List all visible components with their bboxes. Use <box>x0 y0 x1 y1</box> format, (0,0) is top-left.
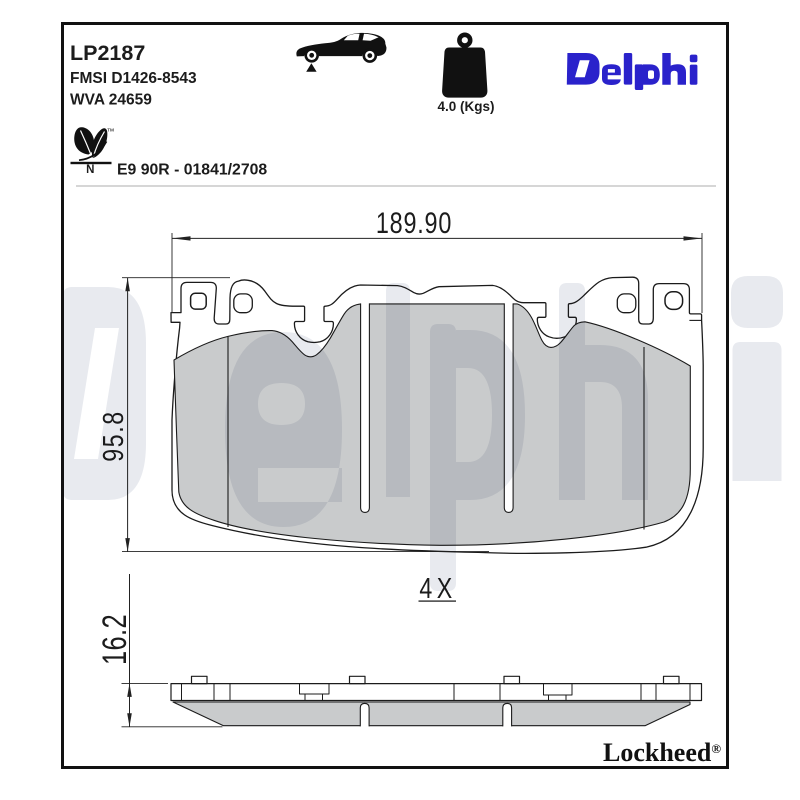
svg-text:WVA 24659: WVA 24659 <box>70 92 152 109</box>
svg-text:E9 90R - 01841/2708: E9 90R - 01841/2708 <box>117 162 267 179</box>
svg-text:Lockheed®: Lockheed® <box>603 738 721 767</box>
svg-text:4.0 (Kgs): 4.0 (Kgs) <box>437 99 494 114</box>
svg-text:16.2: 16.2 <box>97 614 134 665</box>
svg-text:™: ™ <box>107 127 115 136</box>
svg-text:189.90: 189.90 <box>376 206 452 239</box>
svg-text:LP2187: LP2187 <box>70 41 145 65</box>
svg-text:FMSI D1426-8543: FMSI D1426-8543 <box>70 70 197 87</box>
svg-text:N: N <box>86 164 94 176</box>
